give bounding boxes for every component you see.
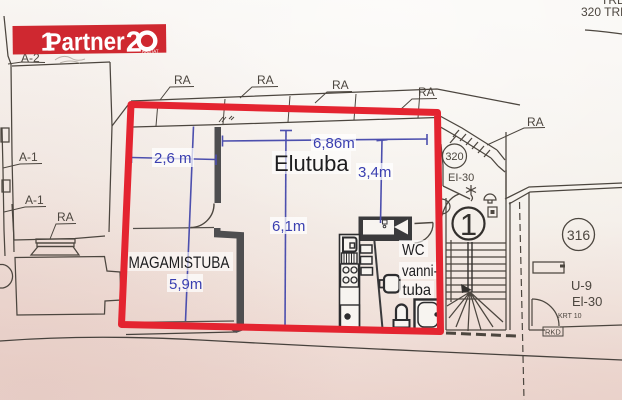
svg-text:KRT 10: KRT 10	[558, 313, 582, 320]
svg-text:1: 1	[460, 207, 477, 242]
svg-text:MAGAMISTUBA: MAGAMISTUBA	[129, 253, 231, 272]
svg-text:RA: RA	[332, 78, 349, 92]
svg-text:320 TRE: 320 TRE	[581, 5, 622, 19]
svg-text:EI-30: EI-30	[448, 172, 474, 184]
svg-text:AASTAT: AASTAT	[142, 49, 159, 54]
svg-text:3,4m: 3,4m	[358, 164, 391, 181]
svg-text:U-9: U-9	[571, 278, 592, 293]
svg-text:316: 316	[567, 227, 591, 243]
svg-text:5,9m: 5,9m	[169, 276, 202, 293]
svg-text:RA: RA	[174, 73, 191, 87]
svg-text:6,1m: 6,1m	[272, 218, 305, 235]
svg-text:Partner: Partner	[47, 28, 126, 57]
svg-text:RKD: RKD	[545, 328, 561, 337]
svg-text:RA: RA	[257, 73, 274, 87]
svg-text:6,86m: 6,86m	[313, 135, 355, 152]
svg-text:RA: RA	[418, 85, 435, 99]
svg-text:RA: RA	[57, 210, 74, 224]
svg-text:El-30: El-30	[572, 294, 602, 309]
svg-text:A-1: A-1	[25, 193, 44, 207]
svg-text:tuba: tuba	[403, 282, 432, 299]
svg-text:2,6 m: 2,6 m	[154, 150, 192, 167]
svg-text:WC: WC	[402, 242, 425, 259]
svg-text:320: 320	[445, 151, 463, 163]
svg-text:TRE: TRE	[601, 0, 622, 7]
svg-text:vanni-: vanni-	[402, 263, 438, 280]
svg-text:Elutuba: Elutuba	[274, 151, 349, 176]
svg-text:RA: RA	[527, 115, 544, 129]
svg-text:A-1: A-1	[19, 150, 38, 164]
